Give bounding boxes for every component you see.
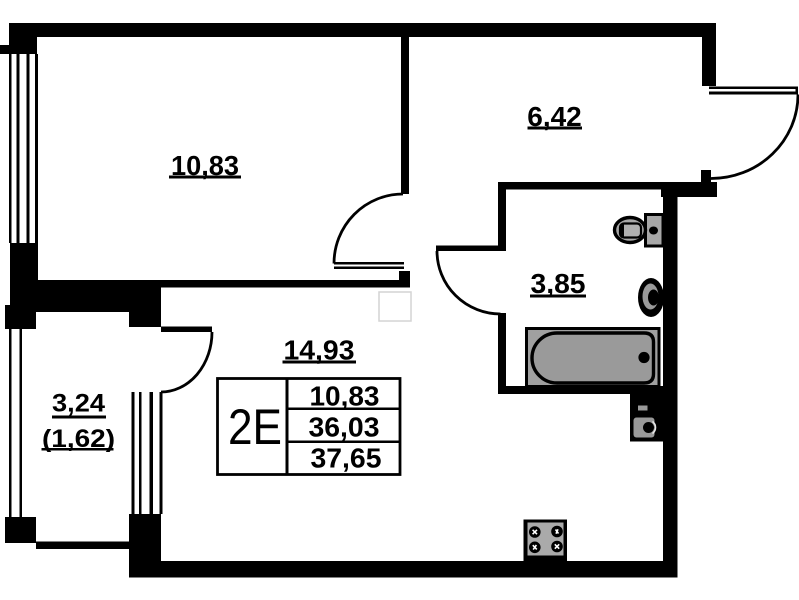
svg-text:10,83: 10,83 <box>310 381 380 412</box>
svg-text:3,24: 3,24 <box>52 390 105 418</box>
svg-text:37,65: 37,65 <box>311 443 382 474</box>
svg-text:3,85: 3,85 <box>531 268 586 299</box>
svg-text:2E: 2E <box>228 399 282 455</box>
svg-text:36,03: 36,03 <box>309 412 380 443</box>
